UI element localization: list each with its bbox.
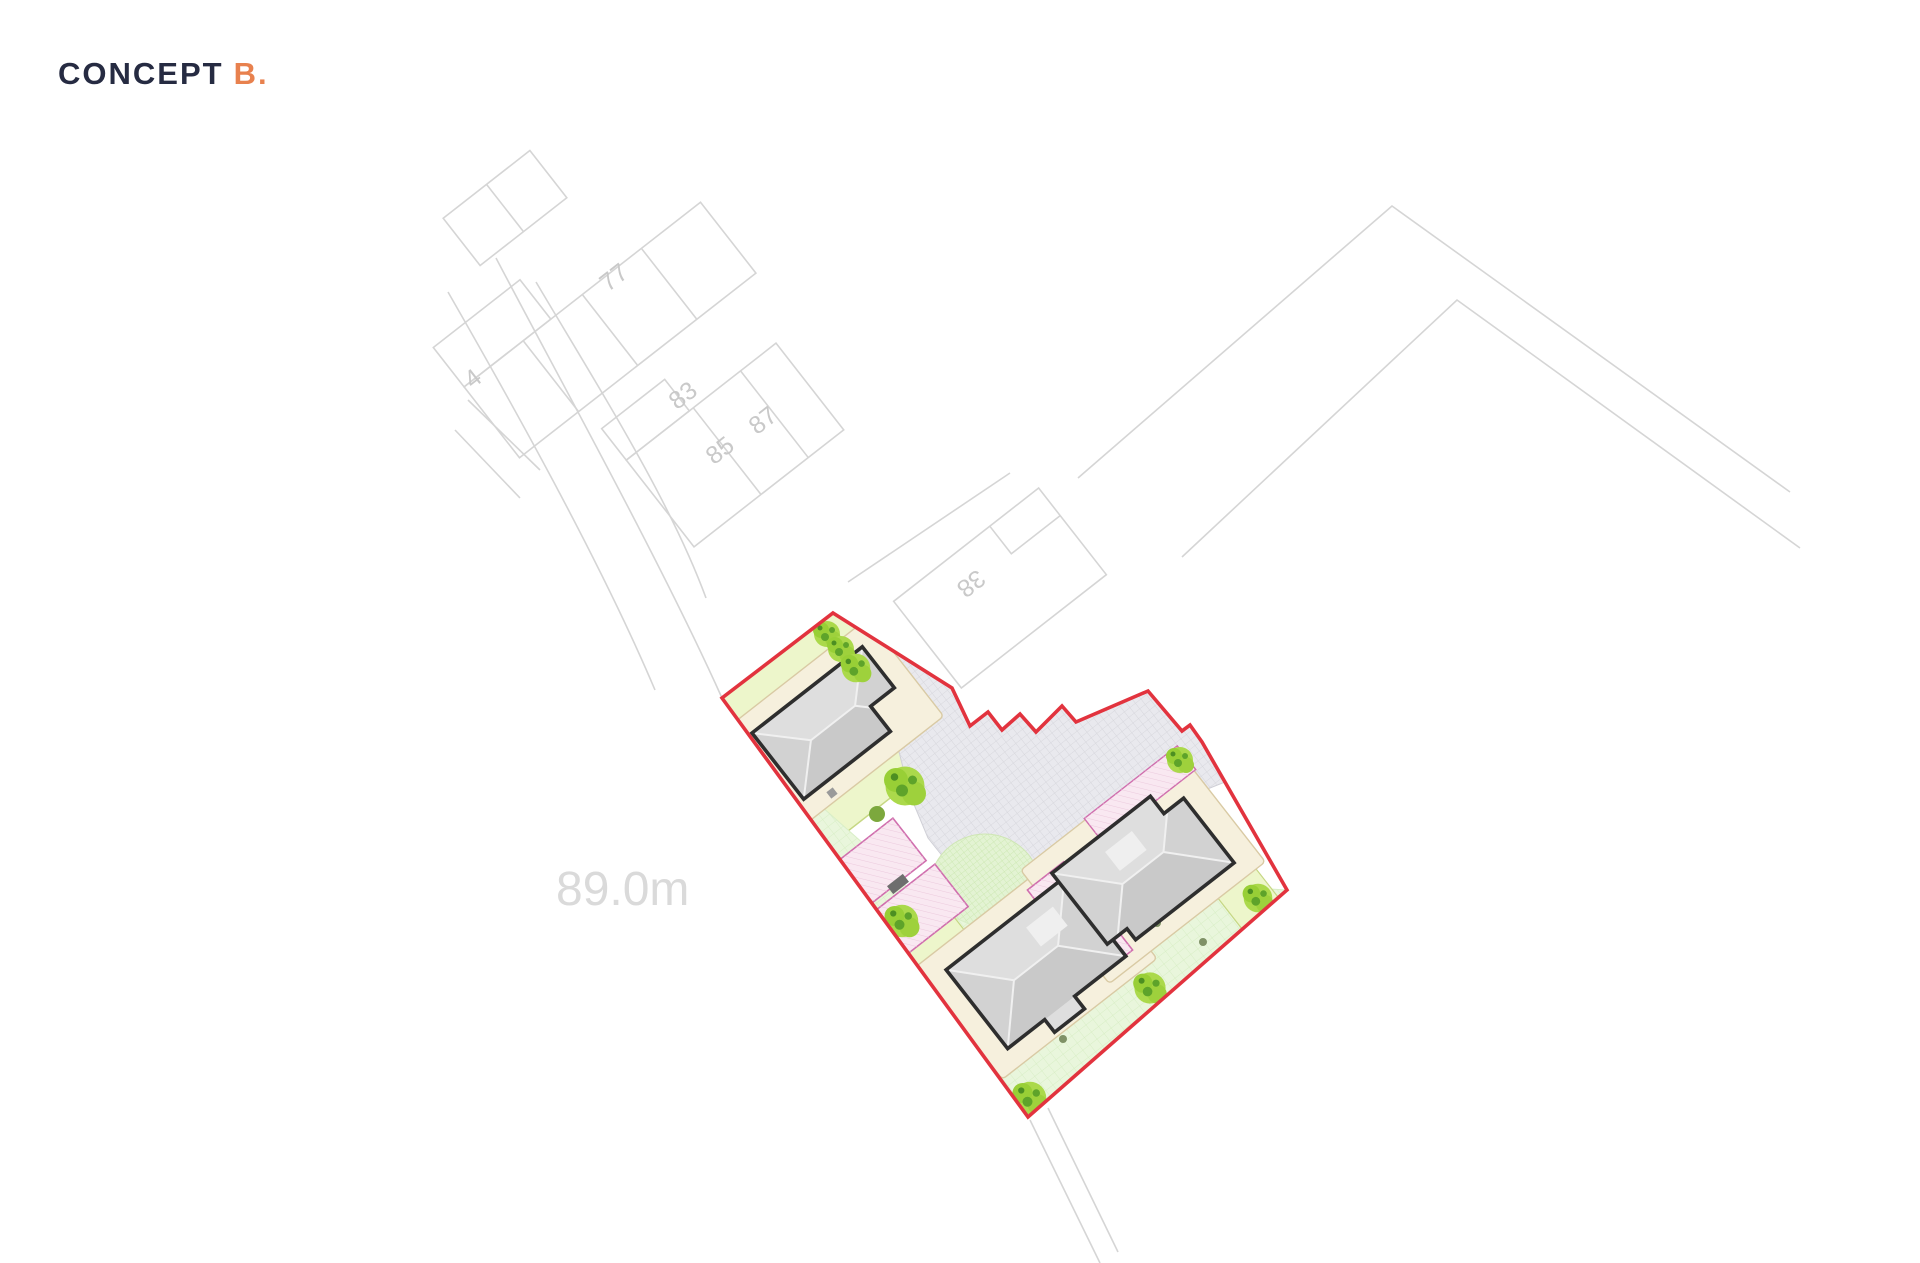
lawn-dot-3 <box>1199 938 1207 946</box>
shrub-icon <box>869 806 885 822</box>
house-number-85: 85 <box>700 431 739 470</box>
neighbour-terrace-83-87 <box>602 312 844 547</box>
site-plan-drawing: 4 77 83 85 87 38 89.0m <box>0 0 1920 1263</box>
lawn-dot-1 <box>1059 1035 1067 1043</box>
site-plan-page: CONCEPTB. <box>0 0 1920 1263</box>
map-labels: 4 77 83 85 87 38 <box>459 258 991 603</box>
tree-icon <box>1157 1000 1182 1023</box>
junction-line-1 <box>1078 206 1790 492</box>
road-edge-far <box>448 292 655 690</box>
road-edge-near <box>496 258 722 698</box>
neighbour-outbuildings <box>443 150 567 265</box>
road-edge-top <box>536 282 706 598</box>
house-number-4: 4 <box>459 363 487 394</box>
neighbour-plot-38 <box>894 488 1107 688</box>
house-number-38: 38 <box>951 564 990 603</box>
plot-38-access-line <box>848 473 1010 582</box>
house-number-77: 77 <box>594 258 633 297</box>
spot-level-label: 89.0m <box>556 863 689 916</box>
house-number-83: 83 <box>663 376 702 415</box>
site-interior <box>675 575 1330 1160</box>
house-number-87: 87 <box>743 401 782 440</box>
neighbour-drive-lines <box>455 400 540 498</box>
junction-line-2 <box>1182 300 1800 557</box>
